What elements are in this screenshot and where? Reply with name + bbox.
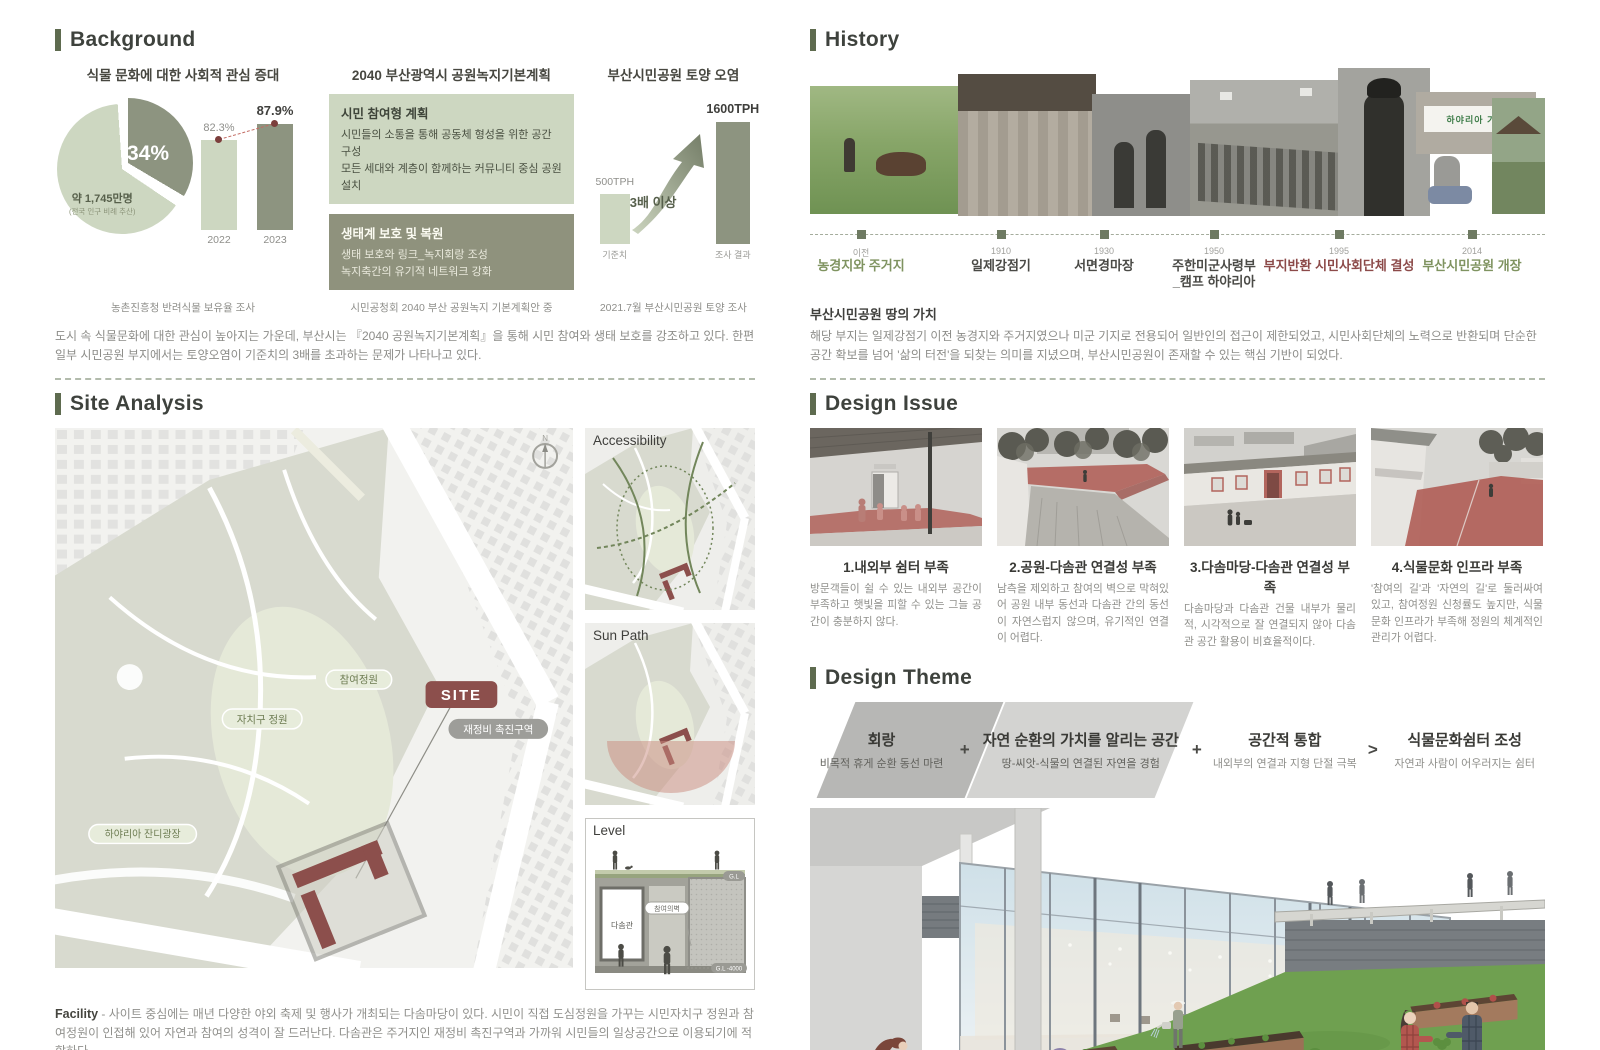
theme-nature-cycle: 자연 순환의 가치를 알리는 공간 땅-씨앗-식물의 연결된 자연을 경험 xyxy=(976,729,1185,771)
crowd-silhouette xyxy=(1198,143,1345,211)
dashed-divider xyxy=(810,378,1545,380)
history-timeline: 이전 1910 1930 1950 1995 2014 농경지와 주거지 일제강… xyxy=(810,226,1545,292)
design-issue-cards: 1.내외부 쉼터 부족 방문객들이 쉴 수 있는 내외부 공간이 부족하고 햇빛… xyxy=(810,428,1545,650)
issue-photo-infrastructure xyxy=(1371,428,1543,546)
site-analysis-section-title: Site Analysis xyxy=(55,392,755,416)
gl-label: G.L xyxy=(723,871,745,881)
svg-text:G.L: G.L xyxy=(729,875,739,881)
background-charts: 식물 문화에 대한 사회적 관심 증대 34% 약 1,745만명 (전국 인구… xyxy=(55,64,755,315)
data-dot xyxy=(215,136,222,143)
svg-text:재정비 촉진구역: 재정비 촉진구역 xyxy=(463,724,533,736)
arrow-separator: > xyxy=(1361,740,1384,760)
photo-soldiers xyxy=(1092,94,1195,216)
theme-corridor: 회랑 비목적 휴게 순환 동선 마련 xyxy=(810,729,953,771)
history-title-text: History xyxy=(825,28,899,52)
title-bar-icon xyxy=(810,29,816,51)
dasom-hall-label: 다솜관 xyxy=(611,920,634,930)
plan-box-ecology: 생태계 보호 및 복원 생태 보호와 링크_녹지회랑 조성 녹지축간의 유기적 … xyxy=(329,214,574,290)
level-section-diagram: Level 다솜관 xyxy=(585,818,755,995)
chart-caption: 2021.7월 부산시민공원 토양 조사 xyxy=(592,300,755,315)
issue-photo-park-connection xyxy=(997,428,1169,546)
bar-2022 xyxy=(201,140,237,230)
mini-diagrams: Accessibility xyxy=(585,428,755,995)
photo-farmland xyxy=(810,86,962,214)
soil-bar-result xyxy=(716,122,750,244)
concept-rendering xyxy=(810,808,1545,1050)
svg-text:자치구 정원: 자치구 정원 xyxy=(237,714,288,726)
title-bar-icon xyxy=(810,667,816,689)
site-analysis-notes: Facility - 사이트 중심에는 매년 다양한 야외 축제 및 행사가 개… xyxy=(55,1005,755,1050)
timeline-label: 농경지와 주거지 xyxy=(806,258,916,274)
map-label-participation-garden: 참여정원 xyxy=(326,671,392,690)
photo-colonial-building xyxy=(958,74,1096,216)
timeline-marker xyxy=(1210,230,1219,239)
soil-title: 부산시민공원 토양 오염 xyxy=(592,64,755,84)
issue-card-3: 3.다솜마당-다솜관 연결성 부족 다솜마당과 다솜관 건물 내부가 물리적, … xyxy=(1184,428,1356,650)
chart-social-interest: 식물 문화에 대한 사회적 관심 증대 34% 약 1,745만명 (전국 인구… xyxy=(55,64,311,315)
dashed-divider xyxy=(55,378,755,380)
land-value-title: 부산시민공원 땅의 가치 xyxy=(810,304,1545,323)
right-column: History 하야리아 기지 이전 1 xyxy=(810,28,1545,1050)
growth-arrow-icon xyxy=(626,128,716,238)
background-section-title: Background xyxy=(55,28,755,52)
map-label-lawn-plaza: 하야리아 잔디광장 xyxy=(89,825,197,844)
section-background: Background 식물 문화에 대한 사회적 관심 증대 34% 약 1,7… xyxy=(55,28,755,364)
timeline-label: 서면경마장 xyxy=(1049,258,1159,274)
title-bar-icon xyxy=(55,393,61,415)
theme-plant-culture-shelter: 식물문화쉼터 조성 자연과 사람이 어우러지는 쉼터 xyxy=(1384,729,1545,771)
site-analysis-title-text: Site Analysis xyxy=(70,392,204,416)
section-site-analysis: Site Analysis xyxy=(55,392,755,1050)
map-label-redevelopment: 재정비 촉진구역 xyxy=(448,719,548,739)
design-theme-title-text: Design Theme xyxy=(825,666,972,690)
bar-chart-pet-plants: 82.3% 87.9% 2022 2023 xyxy=(193,94,311,262)
timeline-label: 일제강점기 xyxy=(946,258,1056,274)
photo-park-pavilion xyxy=(1492,98,1545,214)
timeline-marker xyxy=(1100,230,1109,239)
plus-separator: + xyxy=(953,740,976,760)
svg-text:하야리아 잔디광장: 하야리아 잔디광장 xyxy=(105,828,181,841)
ox-silhouette xyxy=(876,152,926,176)
timeline-marker xyxy=(1468,230,1477,239)
mini-map-sun-path: Sun Path xyxy=(585,623,755,810)
chart-soil-pollution: 부산시민공원 토양 오염 500TPH 1600TPH 3배 이상 xyxy=(592,64,755,315)
farmer-silhouette xyxy=(844,138,855,172)
timeline-marker xyxy=(997,230,1006,239)
map-label-district-garden: 자치구 정원 xyxy=(222,709,302,729)
chart-plan-2040: 2040 부산광역시 공원녹지기본계획 시민 참여형 계획 시민들의 소통을 통… xyxy=(329,64,574,315)
pie-value: 34% xyxy=(127,142,169,166)
svg-text:참여정원: 참여정원 xyxy=(340,675,378,687)
photo-woman-with-dog xyxy=(1422,156,1488,216)
plan-box-participation: 시민 참여형 계획 시민들의 소통을 통해 공동체 형성을 위한 공간 구성 모… xyxy=(329,94,574,204)
background-title-text: Background xyxy=(70,28,196,52)
plan-title: 2040 부산광역시 공원녹지기본계획 xyxy=(329,64,574,84)
map-label-site: SITE xyxy=(426,682,498,709)
presentation-board: Background 식물 문화에 대한 사회적 관심 증대 34% 약 1,7… xyxy=(0,0,1600,1050)
section-design-issue: Design Issue xyxy=(810,392,1545,650)
timeline-marker xyxy=(1335,230,1344,239)
chart-social-title: 식물 문화에 대한 사회적 관심 증대 xyxy=(55,64,311,84)
svg-text:G.L -4000: G.L -4000 xyxy=(716,967,743,973)
title-bar-icon xyxy=(810,393,816,415)
svg-text:SITE: SITE xyxy=(441,687,482,704)
timeline-marker xyxy=(857,230,866,239)
pie-label: 약 1,745만명 (전국 인구 비례 추산) xyxy=(69,190,135,217)
issue-card-4: 4.식물문화 인프라 부족 '참여의 길'과 '자연의 길'로 둘러싸여 있고,… xyxy=(1371,428,1543,650)
photo-march xyxy=(1190,80,1353,216)
pie-chart: 34% 약 1,745만명 (전국 인구 비례 추산) xyxy=(55,94,193,244)
theme-spatial-integration: 공간적 통합 내외부의 연결과 지형 단절 극복 xyxy=(1208,729,1361,771)
history-photo-collage: 하야리아 기지 xyxy=(810,64,1545,218)
note-facility: Facility - 사이트 중심에는 매년 다양한 야외 축제 및 행사가 개… xyxy=(55,1005,755,1050)
plus-separator: + xyxy=(1185,740,1208,760)
pavilion-roof xyxy=(1496,116,1541,134)
left-column: Background 식물 문화에 대한 사회적 관심 증대 34% 약 1,7… xyxy=(55,28,755,1050)
issue-photo-shelter xyxy=(810,428,982,546)
design-issue-title-text: Design Issue xyxy=(825,392,958,416)
svg-text:참여의벽: 참여의벽 xyxy=(654,904,680,913)
issue-photo-yard-connection xyxy=(1184,428,1356,546)
chart-caption: 시민공청회 2040 부산 공원녹지 기본계획안 중 xyxy=(329,300,574,315)
design-theme-section-title: Design Theme xyxy=(810,666,1545,690)
site-map: 참여정원 자치구 정원 SITE 재정비 촉진구역 xyxy=(55,428,573,968)
land-value-text: 해당 부지는 일제강점기 이전 농경지와 주거지였으나 미군 기지로 전용되어 … xyxy=(810,327,1545,364)
section-design-theme: Design Theme 회랑 비목적 휴게 순환 동선 마련 + 자연 순환의… xyxy=(810,666,1545,1050)
sun-path-diagram xyxy=(585,623,755,805)
design-issue-section-title: Design Issue xyxy=(810,392,1545,416)
svg-text:N: N xyxy=(542,434,548,443)
bar-2023 xyxy=(257,124,293,230)
timeline-label: 부산시민공원 개장 xyxy=(1402,258,1542,274)
issue-card-2: 2.공원-다솜관 연결성 부족 남측을 제외하고 참여의 벽으로 막혀있어 공원… xyxy=(997,428,1169,650)
chart-caption: 농촌진흥청 반려식물 보유율 조사 xyxy=(55,300,311,315)
data-dot xyxy=(271,120,278,127)
history-section-title: History xyxy=(810,28,1545,52)
background-summary: 도시 속 식물문화에 대한 관심이 높아지는 가운데, 부산시는 『2040 공… xyxy=(55,327,755,364)
mini-map-accessibility: Accessibility xyxy=(585,428,755,615)
accessibility-diagram xyxy=(585,428,755,610)
issue-card-1: 1.내외부 쉼터 부족 방문객들이 쉴 수 있는 내외부 공간이 부족하고 햇빛… xyxy=(810,428,982,650)
section-history: History 하야리아 기지 이전 1 xyxy=(810,28,1545,364)
timeline-line xyxy=(810,234,1545,235)
arrow-label: 3배 이상 xyxy=(630,192,677,211)
title-bar-icon xyxy=(55,29,61,51)
design-theme-strip: 회랑 비목적 휴게 순환 동선 마련 + 자연 순환의 가치를 알리는 공간 땅… xyxy=(810,702,1545,798)
level-diagram: 다솜관 참여의벽 G.L xyxy=(585,818,755,990)
